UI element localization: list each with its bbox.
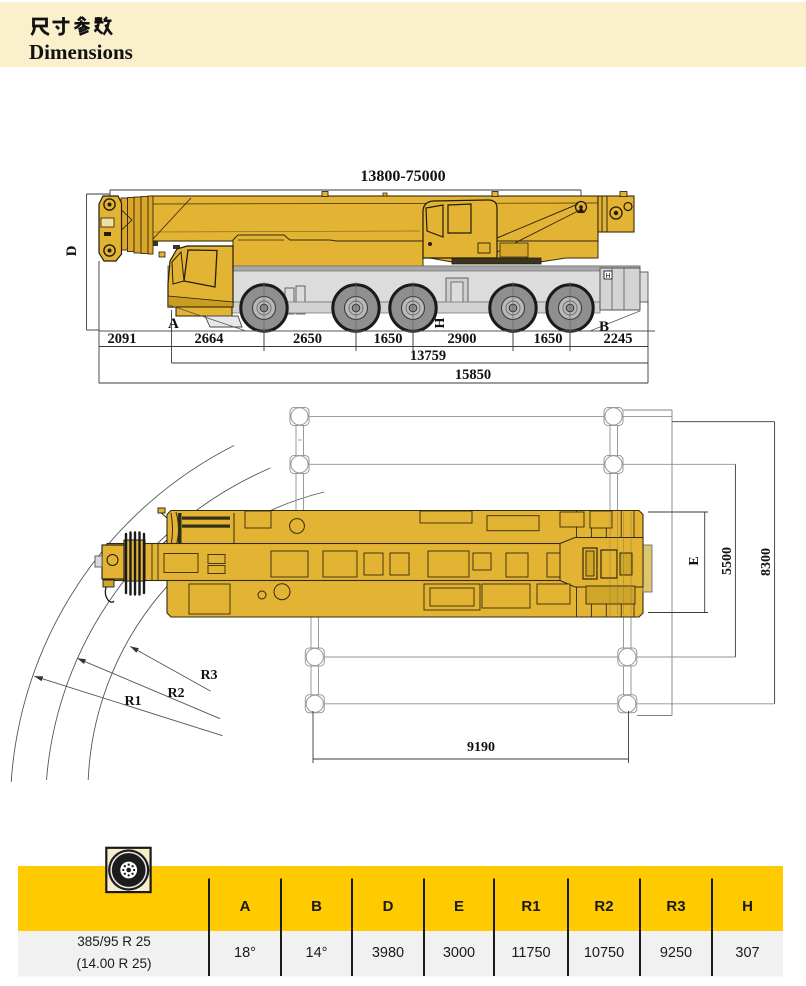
- svg-text:R1: R1: [521, 898, 540, 915]
- svg-text:11750: 11750: [511, 945, 550, 961]
- svg-text:H: H: [742, 898, 753, 915]
- svg-text:R2: R2: [594, 898, 613, 915]
- svg-text:A: A: [240, 898, 251, 915]
- svg-text:9190: 9190: [467, 740, 495, 755]
- svg-text:2650: 2650: [293, 331, 322, 347]
- svg-text:14°: 14°: [306, 945, 328, 961]
- svg-text:13759: 13759: [410, 348, 446, 364]
- svg-text:9250: 9250: [660, 945, 692, 961]
- svg-text:307: 307: [735, 945, 759, 961]
- svg-text:B: B: [311, 898, 322, 915]
- svg-text:3980: 3980: [372, 945, 404, 961]
- svg-text:2091: 2091: [108, 331, 137, 347]
- svg-text:2245: 2245: [604, 331, 633, 347]
- svg-text:E: E: [687, 556, 702, 565]
- svg-text:R2: R2: [167, 686, 184, 701]
- svg-text:R3: R3: [200, 668, 217, 683]
- svg-text:3000: 3000: [443, 945, 475, 961]
- svg-text:2900: 2900: [448, 331, 477, 347]
- svg-text:H: H: [605, 273, 610, 280]
- svg-text:(14.00 R 25): (14.00 R 25): [76, 956, 151, 971]
- svg-text:15850: 15850: [455, 367, 491, 383]
- svg-text:A: A: [168, 316, 179, 332]
- svg-text:8300: 8300: [759, 548, 774, 576]
- svg-text:5500: 5500: [720, 547, 735, 575]
- svg-text:D: D: [383, 898, 394, 915]
- svg-text:18°: 18°: [234, 945, 256, 961]
- svg-text:R1: R1: [124, 694, 141, 709]
- svg-text:385/95 R 25: 385/95 R 25: [77, 934, 151, 949]
- svg-text:13800-75000: 13800-75000: [360, 168, 445, 185]
- svg-text:H: H: [433, 317, 448, 328]
- svg-text:1650: 1650: [534, 331, 563, 347]
- svg-text:R3: R3: [666, 898, 685, 915]
- svg-text:10750: 10750: [584, 945, 624, 961]
- svg-text:1650: 1650: [374, 331, 403, 347]
- svg-text:E: E: [454, 898, 464, 915]
- svg-text:2664: 2664: [195, 331, 224, 347]
- svg-text:Dimensions: Dimensions: [29, 40, 133, 64]
- svg-text:D: D: [64, 245, 80, 256]
